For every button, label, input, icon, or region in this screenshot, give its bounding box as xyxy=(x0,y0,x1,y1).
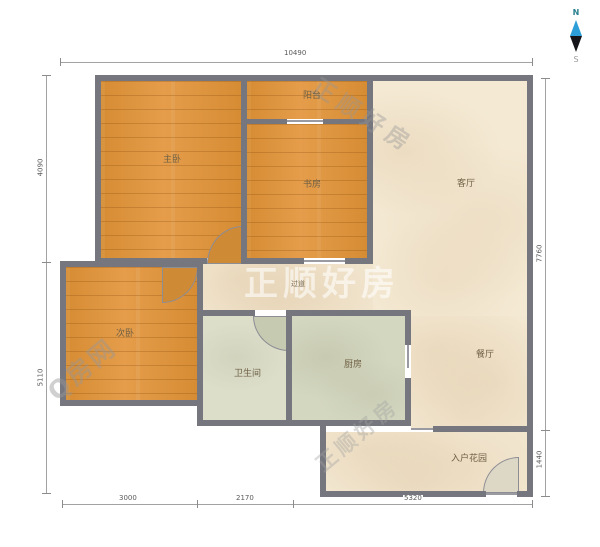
wall-segment xyxy=(517,491,533,497)
floor-plan: 主卧 阳台 书房 客厅 次卧 卫生间 厨房 餐厅 入户花园 过道 正顺好房 正顺… xyxy=(0,0,600,547)
room-label-hallway: 过道 xyxy=(291,281,305,288)
room-label-second-bedroom: 次卧 xyxy=(116,330,134,339)
wall-segment xyxy=(286,310,292,426)
dimension-line-top xyxy=(60,62,533,63)
dimension-tick xyxy=(42,493,51,494)
wall-segment xyxy=(60,400,203,406)
window xyxy=(407,345,409,368)
compass-south-label: S xyxy=(563,55,589,64)
dimension-label-right-upper: 7760 xyxy=(536,244,543,264)
wall-segment xyxy=(367,81,373,264)
wall-segment xyxy=(433,426,533,432)
compass: N S xyxy=(563,8,589,72)
dimension-label-bottom-right: 5320 xyxy=(403,495,423,502)
wall-segment xyxy=(60,261,203,267)
wall-segment xyxy=(95,75,533,81)
door-threshold xyxy=(411,428,433,430)
dimension-tick xyxy=(62,500,63,508)
room-label-study: 书房 xyxy=(303,181,321,190)
room-label-kitchen: 厨房 xyxy=(344,361,362,370)
wall-segment xyxy=(197,310,255,316)
wall-segment xyxy=(320,426,326,497)
wall-segment xyxy=(95,75,101,264)
room-label-bathroom: 卫生间 xyxy=(234,370,261,379)
dimension-label-bottom-middle: 2170 xyxy=(235,495,255,502)
dimension-label-left-upper: 4090 xyxy=(37,158,44,178)
dimension-label-bottom-left: 3000 xyxy=(118,495,138,502)
wall-segment xyxy=(323,119,367,124)
room-label-entry-garden: 入户花园 xyxy=(451,455,487,464)
hallway-floor xyxy=(203,264,373,310)
study-floor xyxy=(247,124,367,258)
wall-segment xyxy=(287,310,411,316)
dimension-tick xyxy=(197,500,198,508)
dimension-tick xyxy=(60,58,61,66)
room-label-balcony: 阳台 xyxy=(303,92,321,101)
wall-segment xyxy=(405,310,411,345)
window xyxy=(304,260,345,262)
dimension-tick xyxy=(532,58,533,66)
dimension-tick xyxy=(541,496,550,497)
wall-segment xyxy=(527,75,533,497)
compass-needle-icon xyxy=(570,20,582,52)
dimension-tick xyxy=(293,500,294,508)
room-label-dining-room: 餐厅 xyxy=(476,351,494,360)
living-room-floor xyxy=(373,81,527,316)
dimension-line-left xyxy=(46,75,47,494)
wall-segment xyxy=(197,261,203,426)
dining-room-floor xyxy=(411,316,527,428)
door-threshold xyxy=(486,493,517,495)
room-label-living-room: 客厅 xyxy=(457,180,475,189)
wall-segment xyxy=(405,378,411,426)
wall-segment xyxy=(197,420,411,426)
wall-segment xyxy=(247,119,287,124)
room-label-master-bedroom: 主卧 xyxy=(163,156,181,165)
dimension-label-right-lower: 1440 xyxy=(536,450,543,470)
compass-needle-north-half xyxy=(570,20,582,36)
wall-segment xyxy=(241,81,247,264)
dimension-tick xyxy=(42,75,51,76)
compass-north-label: N xyxy=(563,8,589,17)
dimension-label-left-lower: 5110 xyxy=(37,368,44,388)
dimension-tick xyxy=(541,78,550,79)
wall-segment xyxy=(247,258,304,264)
dimension-line-right xyxy=(545,78,546,497)
dimension-line-bottom xyxy=(62,504,533,505)
dimension-label-top: 10490 xyxy=(283,50,307,57)
dimension-tick xyxy=(541,430,550,431)
master-bedroom-floor xyxy=(101,81,241,258)
compass-needle-south-half xyxy=(570,36,582,52)
wall-segment xyxy=(60,261,66,406)
window xyxy=(287,120,323,122)
dimension-tick xyxy=(532,500,533,508)
dimension-tick xyxy=(42,262,51,263)
wall-segment xyxy=(345,258,373,264)
